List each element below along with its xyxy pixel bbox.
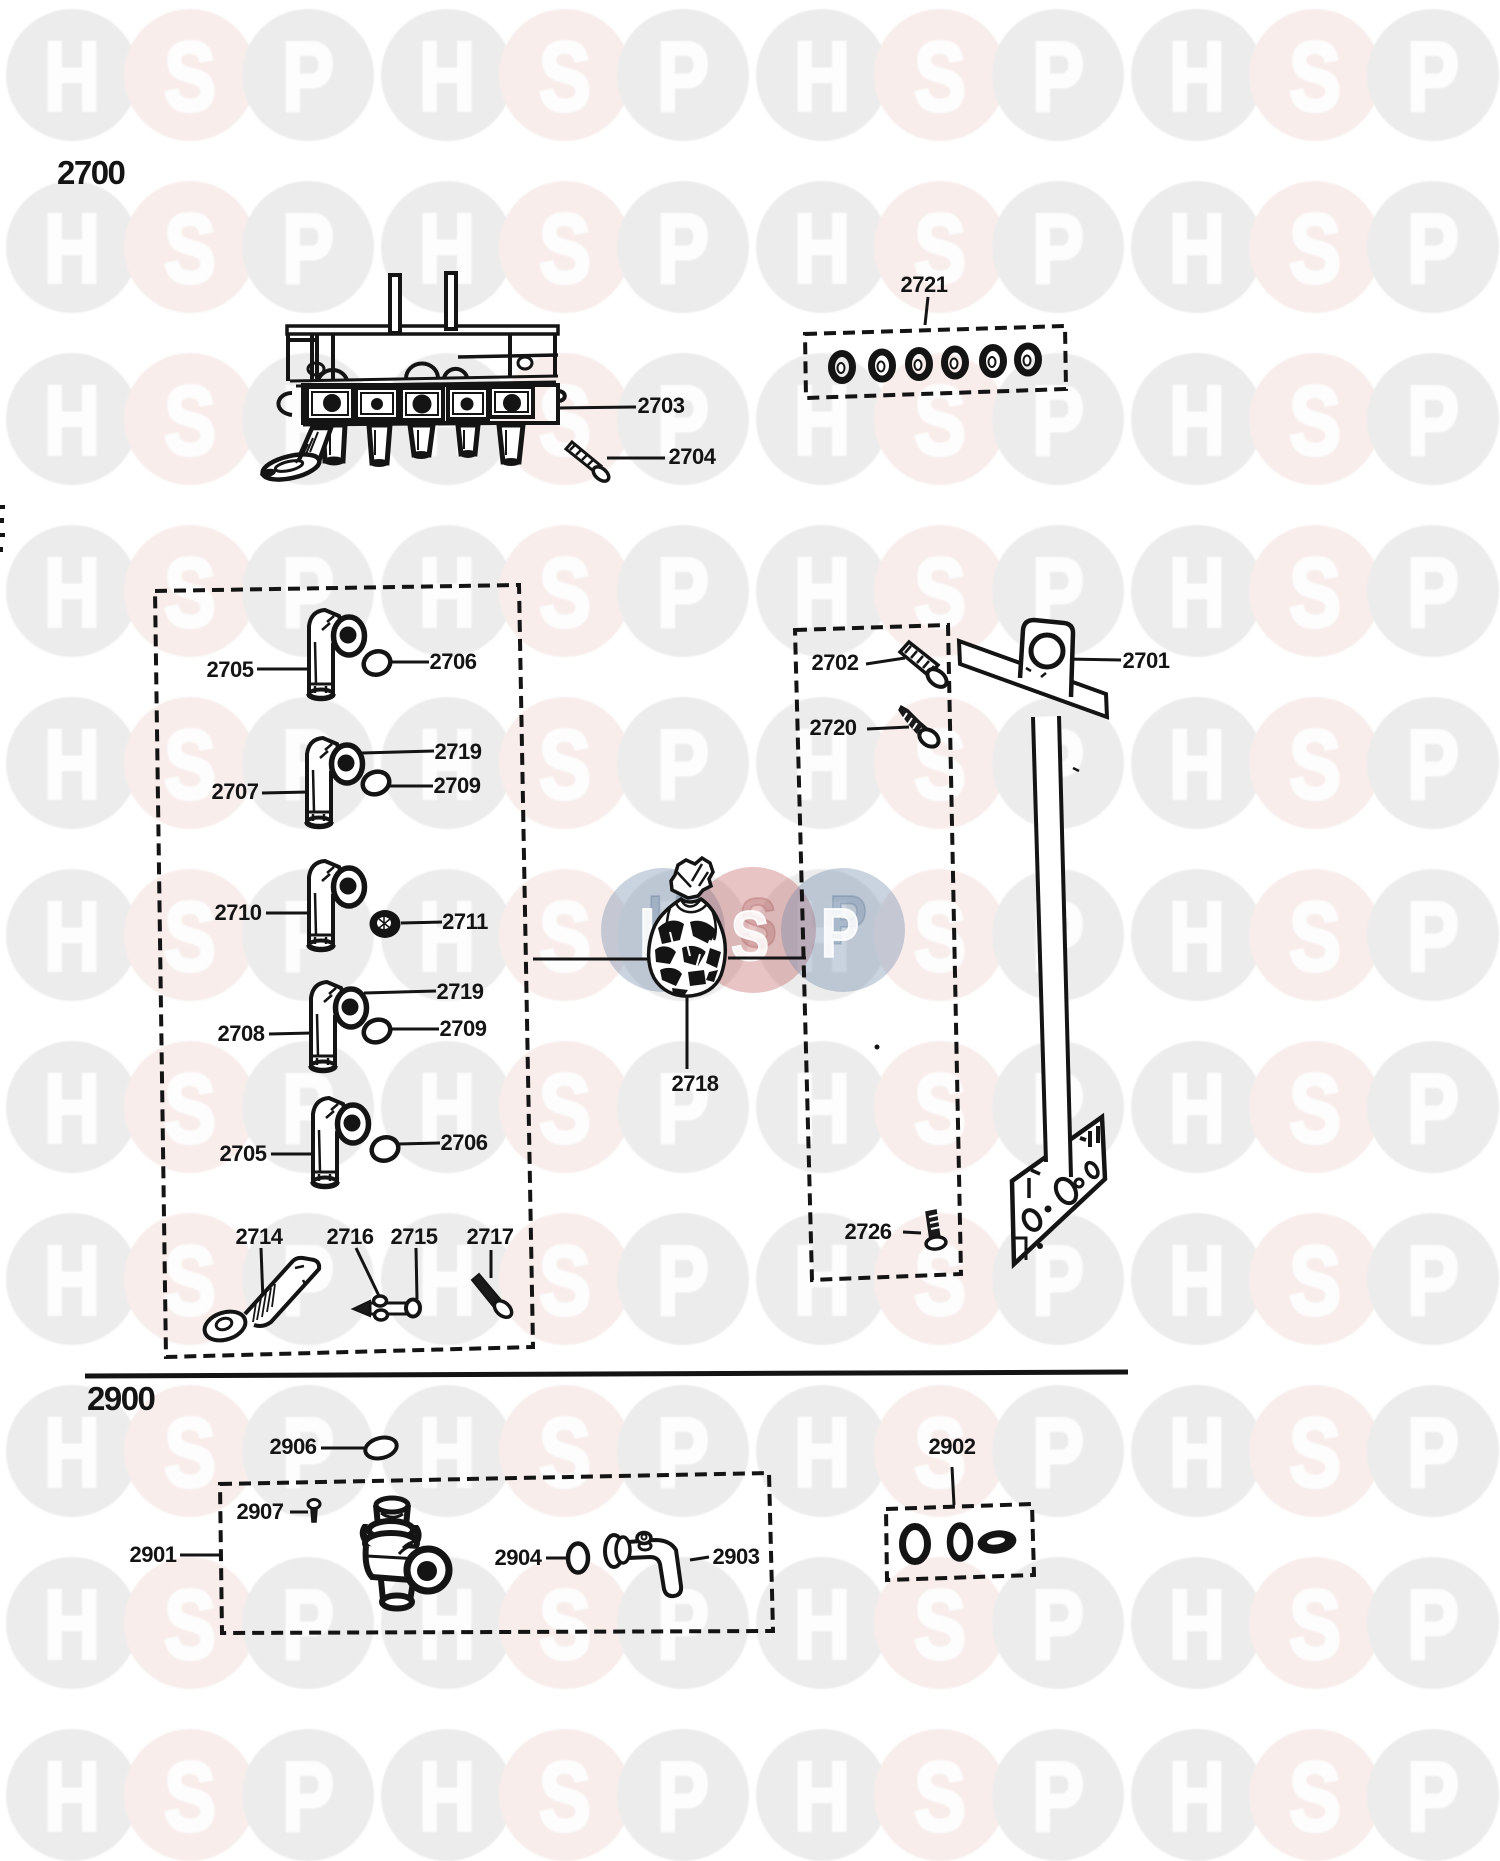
svg-text:P: P xyxy=(1407,366,1459,475)
svg-text:S: S xyxy=(1289,194,1341,303)
svg-text:2703: 2703 xyxy=(638,393,685,418)
svg-text:2717: 2717 xyxy=(467,1224,514,1249)
svg-text:P: P xyxy=(1032,1570,1084,1679)
svg-text:P: P xyxy=(1407,194,1459,303)
svg-text:S: S xyxy=(1289,882,1341,991)
svg-text:P: P xyxy=(657,710,709,819)
svg-text:H: H xyxy=(419,1398,475,1507)
svg-text:S: S xyxy=(1289,1054,1341,1163)
svg-text:S: S xyxy=(1289,366,1341,475)
svg-text:S: S xyxy=(914,366,966,475)
svg-text:S: S xyxy=(539,882,591,991)
svg-text:2710: 2710 xyxy=(215,900,262,925)
svg-text:P: P xyxy=(821,894,859,973)
svg-text:S: S xyxy=(539,538,591,647)
svg-text:2714: 2714 xyxy=(236,1224,284,1249)
svg-text:H: H xyxy=(794,1054,850,1163)
svg-text:P: P xyxy=(282,1570,334,1679)
svg-text:S: S xyxy=(914,882,966,991)
svg-text:H: H xyxy=(419,22,475,131)
svg-text:H: H xyxy=(44,538,100,647)
svg-text:H: H xyxy=(1169,882,1225,991)
svg-text:S: S xyxy=(164,194,216,303)
svg-text:P: P xyxy=(1407,1226,1459,1335)
svg-text:S: S xyxy=(914,1742,966,1851)
svg-text:S: S xyxy=(731,897,769,976)
svg-text:S: S xyxy=(1289,1570,1341,1679)
svg-text:S: S xyxy=(539,194,591,303)
svg-text:H: H xyxy=(1169,1570,1225,1679)
svg-text:H: H xyxy=(44,194,100,303)
svg-text:H: H xyxy=(1169,1742,1225,1851)
svg-text:P: P xyxy=(657,538,709,647)
svg-text:2719: 2719 xyxy=(437,979,484,1004)
svg-text:S: S xyxy=(539,1398,591,1507)
svg-text:H: H xyxy=(44,710,100,819)
svg-text:H: H xyxy=(1169,22,1225,131)
svg-text:P: P xyxy=(282,1742,334,1851)
svg-text:H: H xyxy=(1169,1054,1225,1163)
svg-text:S: S xyxy=(914,538,966,647)
svg-text:H: H xyxy=(44,882,100,991)
svg-text:H: H xyxy=(44,1742,100,1851)
svg-text:H: H xyxy=(44,1570,100,1679)
svg-text:2719: 2719 xyxy=(435,739,482,764)
svg-text:S: S xyxy=(164,1054,216,1163)
svg-text:S: S xyxy=(914,22,966,131)
svg-text:H: H xyxy=(44,22,100,131)
svg-text:2704: 2704 xyxy=(669,444,717,469)
svg-text:2705: 2705 xyxy=(220,1141,267,1166)
svg-text:H: H xyxy=(794,22,850,131)
svg-text:P: P xyxy=(657,22,709,131)
svg-text:P: P xyxy=(657,1742,709,1851)
svg-text:S: S xyxy=(539,1742,591,1851)
svg-text:P: P xyxy=(1407,1054,1459,1163)
svg-text:S: S xyxy=(164,882,216,991)
svg-text:H: H xyxy=(794,1570,850,1679)
svg-text:2700: 2700 xyxy=(57,154,125,191)
svg-text:2907: 2907 xyxy=(237,1499,284,1524)
svg-text:S: S xyxy=(539,1054,591,1163)
svg-text:S: S xyxy=(539,1570,591,1679)
svg-text:S: S xyxy=(1289,710,1341,819)
svg-text:H: H xyxy=(1169,1398,1225,1507)
svg-text:2702: 2702 xyxy=(812,650,859,675)
svg-text:2902: 2902 xyxy=(929,1434,976,1459)
svg-text:H: H xyxy=(419,882,475,991)
svg-text:P: P xyxy=(1032,366,1084,475)
svg-text:2709: 2709 xyxy=(434,773,481,798)
svg-text:S: S xyxy=(164,1742,216,1851)
svg-text:2903: 2903 xyxy=(713,1544,760,1569)
svg-text:H: H xyxy=(419,538,475,647)
svg-text:H: H xyxy=(44,1054,100,1163)
svg-text:P: P xyxy=(1407,538,1459,647)
svg-text:S: S xyxy=(1289,1226,1341,1335)
svg-text:P: P xyxy=(1032,194,1084,303)
svg-text:S: S xyxy=(164,538,216,647)
svg-text:S: S xyxy=(1289,1398,1341,1507)
svg-text:P: P xyxy=(1407,882,1459,991)
svg-text:2901: 2901 xyxy=(130,1542,177,1567)
svg-text:P: P xyxy=(657,1398,709,1507)
svg-text:H: H xyxy=(419,710,475,819)
svg-text:H: H xyxy=(1169,1226,1225,1335)
svg-text:2708: 2708 xyxy=(218,1021,265,1046)
svg-text:S: S xyxy=(1289,22,1341,131)
svg-text:P: P xyxy=(1407,710,1459,819)
svg-text:H: H xyxy=(419,1742,475,1851)
svg-text:H: H xyxy=(1169,194,1225,303)
svg-text:2900: 2900 xyxy=(87,1380,155,1417)
svg-text:P: P xyxy=(1032,1398,1084,1507)
svg-text:H: H xyxy=(1169,366,1225,475)
svg-text:H: H xyxy=(794,194,850,303)
svg-text:2716: 2716 xyxy=(327,1224,374,1249)
svg-text:2707: 2707 xyxy=(212,779,259,804)
svg-text:2726: 2726 xyxy=(845,1219,892,1244)
svg-text:S: S xyxy=(914,1570,966,1679)
svg-text:P: P xyxy=(1407,22,1459,131)
svg-text:H: H xyxy=(44,1226,100,1335)
svg-text:2706: 2706 xyxy=(441,1130,488,1155)
svg-text:P: P xyxy=(1407,1742,1459,1851)
svg-text:P: P xyxy=(1032,1742,1084,1851)
svg-text:S: S xyxy=(164,366,216,475)
svg-text:P: P xyxy=(1032,22,1084,131)
svg-text:2720: 2720 xyxy=(810,715,857,740)
svg-text:S: S xyxy=(164,1570,216,1679)
svg-text:2721: 2721 xyxy=(901,272,948,297)
svg-text:S: S xyxy=(164,710,216,819)
svg-text:2701: 2701 xyxy=(1123,648,1170,673)
svg-text:2906: 2906 xyxy=(270,1434,317,1459)
svg-text:S: S xyxy=(164,22,216,131)
svg-text:2904: 2904 xyxy=(495,1545,543,1570)
svg-text:2705: 2705 xyxy=(207,657,254,682)
svg-text:S: S xyxy=(164,1398,216,1507)
svg-text:H: H xyxy=(1169,710,1225,819)
svg-text:2715: 2715 xyxy=(391,1224,438,1249)
svg-text:P: P xyxy=(282,22,334,131)
svg-text:P: P xyxy=(282,194,334,303)
svg-text:H: H xyxy=(44,366,100,475)
svg-text:P: P xyxy=(1407,1570,1459,1679)
svg-text:S: S xyxy=(539,710,591,819)
svg-text:2709: 2709 xyxy=(440,1016,487,1041)
svg-text:S: S xyxy=(1289,1742,1341,1851)
svg-text:H: H xyxy=(794,1398,850,1507)
svg-text:S: S xyxy=(539,22,591,131)
svg-text:P: P xyxy=(657,1226,709,1335)
svg-text:P: P xyxy=(1407,1398,1459,1507)
svg-text:H: H xyxy=(794,1742,850,1851)
svg-text:2711: 2711 xyxy=(442,909,488,934)
svg-text:S: S xyxy=(539,1226,591,1335)
svg-text:P: P xyxy=(657,194,709,303)
svg-text:2706: 2706 xyxy=(430,649,477,674)
svg-text:2718: 2718 xyxy=(672,1071,719,1096)
svg-text:S: S xyxy=(1289,538,1341,647)
svg-text:H: H xyxy=(1169,538,1225,647)
